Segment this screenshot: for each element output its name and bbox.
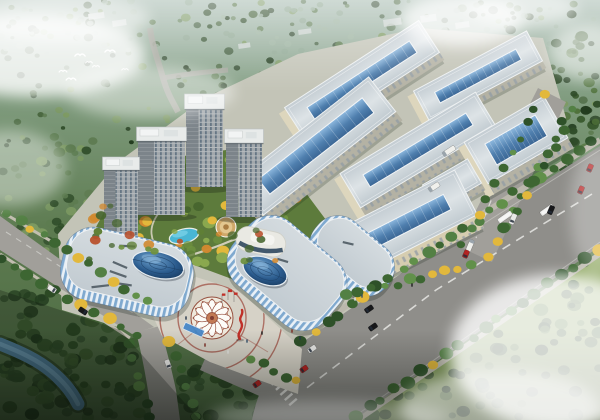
street-tree — [457, 224, 468, 233]
garden-tree — [112, 219, 122, 228]
garden-tree — [127, 241, 137, 249]
garden-tree — [245, 245, 254, 253]
street-tree — [497, 223, 510, 234]
forest-tree — [126, 127, 131, 131]
street-tree — [522, 191, 532, 199]
street-tree — [16, 215, 28, 225]
forest-tree — [42, 113, 47, 117]
garden-tree — [94, 228, 103, 235]
garden-tree — [150, 248, 158, 255]
street-tree — [428, 270, 437, 278]
street-tree — [507, 187, 517, 196]
street-tree — [84, 259, 93, 267]
street-tree — [466, 260, 477, 269]
mandala-center — [210, 316, 214, 320]
street-tree — [543, 149, 553, 158]
pedestrian — [361, 294, 362, 297]
street-tree — [557, 117, 567, 125]
street-tree — [2, 210, 11, 218]
tower-crown-shadow-line — [103, 170, 140, 171]
forest-tree — [569, 127, 578, 134]
street-tree — [367, 284, 376, 292]
forest-tree — [77, 156, 83, 161]
tower-roof-box — [140, 129, 159, 136]
street-tree — [132, 292, 140, 298]
garden-ornament-center — [223, 224, 229, 230]
garden-tree — [272, 258, 278, 263]
street-tree — [485, 206, 493, 213]
garden-tree — [213, 236, 222, 244]
garden-tree — [197, 229, 205, 235]
garden-tree — [246, 257, 253, 263]
street-tree — [489, 179, 499, 188]
street-tree — [394, 282, 403, 289]
garden-tree — [96, 211, 107, 220]
street-tree — [382, 274, 392, 283]
tower-roof-box — [106, 159, 120, 166]
garden-tree — [90, 236, 101, 245]
street-tree — [467, 224, 476, 232]
mandala-dot — [227, 308, 229, 310]
garden-tree — [109, 243, 115, 248]
street-tree — [561, 154, 574, 165]
street-tree — [496, 199, 508, 209]
street-tree — [108, 277, 120, 287]
street-tree — [20, 269, 33, 280]
tower-crown-shadow-line — [137, 141, 187, 142]
street-tree — [528, 176, 540, 187]
street-tree — [409, 257, 418, 265]
garden-tree — [228, 231, 238, 239]
mandala-dot — [230, 317, 232, 319]
garden-tree — [208, 216, 217, 224]
street-tree — [569, 106, 577, 113]
street-tree — [585, 136, 596, 146]
tower-roof-box — [246, 132, 257, 138]
garden-tree — [186, 250, 195, 257]
street-tree — [475, 211, 485, 220]
street-tree — [573, 145, 585, 155]
mandala-dot — [193, 317, 195, 319]
forest-tree — [50, 133, 59, 141]
street-tree — [340, 289, 352, 300]
forest-tree — [55, 107, 63, 113]
street-tree — [61, 245, 72, 255]
street-tree — [523, 118, 533, 126]
garden-tree — [172, 229, 178, 234]
pedestrian — [185, 316, 186, 319]
garden-tree — [216, 232, 222, 237]
forest-tree — [14, 119, 21, 125]
mandala-dot — [227, 326, 229, 328]
pedestrian — [354, 297, 355, 300]
street-tree — [445, 232, 457, 242]
garden-tree — [253, 227, 260, 233]
garden-tree — [118, 245, 124, 250]
forest-tree — [71, 150, 78, 156]
forest-tree — [50, 200, 59, 207]
street-tree — [483, 253, 493, 262]
street-tree — [400, 265, 409, 272]
aerial-rendering-stage — [0, 0, 600, 420]
street-tree — [499, 164, 509, 172]
tower-roof-box — [228, 131, 242, 138]
forest-tree — [165, 119, 170, 123]
forest-tree — [592, 119, 600, 125]
mist-cloud — [65, 66, 235, 118]
street-tree — [551, 143, 561, 152]
street-tree — [11, 263, 20, 270]
street-tree — [323, 316, 336, 327]
mandala-dot — [195, 308, 197, 310]
street-tree — [559, 125, 570, 135]
forest-tree — [579, 96, 588, 103]
forest-tree — [63, 112, 70, 117]
pedestrian — [411, 283, 412, 286]
forest-tree — [112, 116, 121, 124]
street-tree — [529, 106, 538, 113]
street-tree — [62, 294, 73, 304]
forest-tree — [61, 126, 65, 130]
street-tree — [552, 136, 560, 143]
street-tree — [568, 264, 578, 273]
street-tree — [117, 324, 125, 331]
garden-tree — [145, 246, 151, 251]
forest-tree — [588, 131, 594, 136]
mandala-dot — [202, 301, 204, 303]
street-tree — [416, 275, 426, 283]
street-tree — [493, 237, 503, 246]
street-tree — [88, 308, 99, 318]
street-tree — [404, 273, 417, 284]
street-tree — [517, 137, 524, 143]
tower-window-face — [154, 141, 185, 215]
mandala-dot — [211, 299, 213, 301]
tower-crown-shadow-line — [225, 143, 264, 144]
forest-tree — [577, 116, 585, 123]
street-tree — [439, 266, 450, 276]
garden-tree — [125, 231, 135, 239]
garden-tree — [202, 245, 212, 253]
street-tree — [143, 297, 152, 305]
aerial-rendering — [0, 0, 600, 420]
street-tree — [510, 150, 517, 156]
street-tree — [540, 162, 549, 170]
tower-window-face — [238, 143, 262, 217]
tower-floor-lines — [186, 109, 199, 187]
street-tree — [481, 195, 490, 203]
forest-tree — [62, 193, 68, 198]
garden-tree — [177, 239, 183, 244]
street-tree — [453, 266, 461, 273]
street-tree — [103, 313, 117, 325]
street-tree — [118, 285, 129, 295]
garden-tree — [99, 203, 107, 209]
street-tree — [422, 246, 436, 258]
street-tree — [457, 241, 465, 248]
garden-tree — [203, 238, 209, 244]
street-tree — [41, 231, 49, 238]
forest-tree — [88, 137, 97, 145]
garden-tree — [107, 204, 113, 209]
street-tree — [436, 242, 444, 249]
street-tree — [549, 165, 558, 173]
forest-tree — [580, 106, 591, 115]
forest-tree — [72, 199, 78, 204]
street-tree — [347, 299, 358, 308]
street-tree — [381, 283, 388, 289]
forest-tree — [65, 170, 71, 175]
tower-roof-box — [164, 130, 178, 136]
garden-tree — [193, 202, 204, 211]
tower-window-face — [199, 109, 223, 187]
street-tree — [72, 253, 84, 263]
tower-floor-lines — [138, 141, 154, 215]
street-tree — [25, 226, 33, 233]
street-tree — [35, 278, 48, 289]
garden-tree — [200, 259, 209, 267]
forest-tree — [129, 140, 134, 144]
street-tree — [49, 238, 61, 248]
street-tree — [95, 267, 107, 277]
forest-tree — [82, 147, 92, 155]
tower-roof-box — [123, 160, 133, 166]
tower-floor-lines — [226, 143, 238, 217]
